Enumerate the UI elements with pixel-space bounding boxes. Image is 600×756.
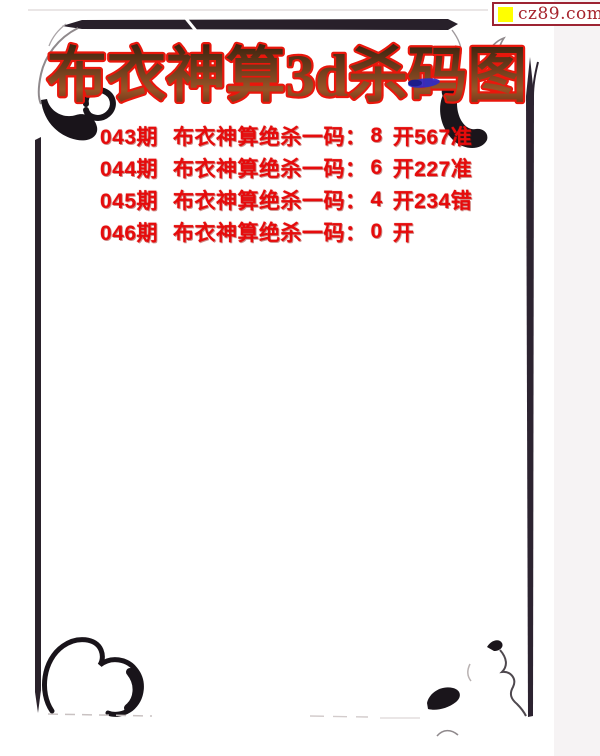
draw-result: 开567准	[393, 121, 473, 151]
lottery-chart-page: 布衣神算3d杀码图 043期 布衣神算绝杀一码： 8 开567准 044期 布衣…	[0, 0, 600, 756]
page-title: 布衣神算3d杀码图	[47, 43, 527, 109]
prediction-row: 045期 布衣神算绝杀一码： 4 开234错	[100, 184, 472, 216]
bottom-right-cloud	[427, 687, 460, 709]
period-label: 046期	[100, 217, 173, 247]
site-badge-label: cz89.com	[518, 6, 600, 23]
kill-number: 8	[371, 124, 383, 148]
kill-label: 布衣神算绝杀一码：	[173, 217, 367, 247]
draw-result: 开234错	[393, 185, 473, 215]
kill-label: 布衣神算绝杀一码：	[173, 185, 367, 215]
draw-result: 开227准	[393, 153, 473, 183]
kill-number: 4	[371, 188, 383, 212]
period-label: 043期	[100, 121, 173, 151]
site-badge: cz89.com	[492, 2, 600, 26]
period-label: 044期	[100, 153, 173, 183]
frame-left-line	[35, 137, 41, 713]
title-banner: 布衣神算3d杀码图	[0, 36, 600, 120]
prediction-list: 043期 布衣神算绝杀一码： 8 开567准 044期 布衣神算绝杀一码： 6 …	[100, 120, 472, 248]
kill-number: 0	[371, 220, 383, 244]
draw-result: 开	[393, 217, 415, 247]
kill-number: 6	[371, 156, 383, 180]
period-label: 045期	[100, 185, 173, 215]
bottom-left-cloud	[44, 640, 141, 715]
prediction-row: 043期 布衣神算绝杀一码： 8 开567准	[100, 120, 472, 152]
prediction-row: 046期 布衣神算绝杀一码： 0 开	[100, 216, 472, 248]
yellow-square-icon	[498, 7, 513, 22]
frame-right-line	[526, 57, 534, 717]
prediction-row: 044期 布衣神算绝杀一码： 6 开227准	[100, 152, 472, 184]
frame-top-line	[62, 19, 458, 30]
kill-label: 布衣神算绝杀一码：	[173, 121, 367, 151]
kill-label: 布衣神算绝杀一码：	[173, 153, 367, 183]
